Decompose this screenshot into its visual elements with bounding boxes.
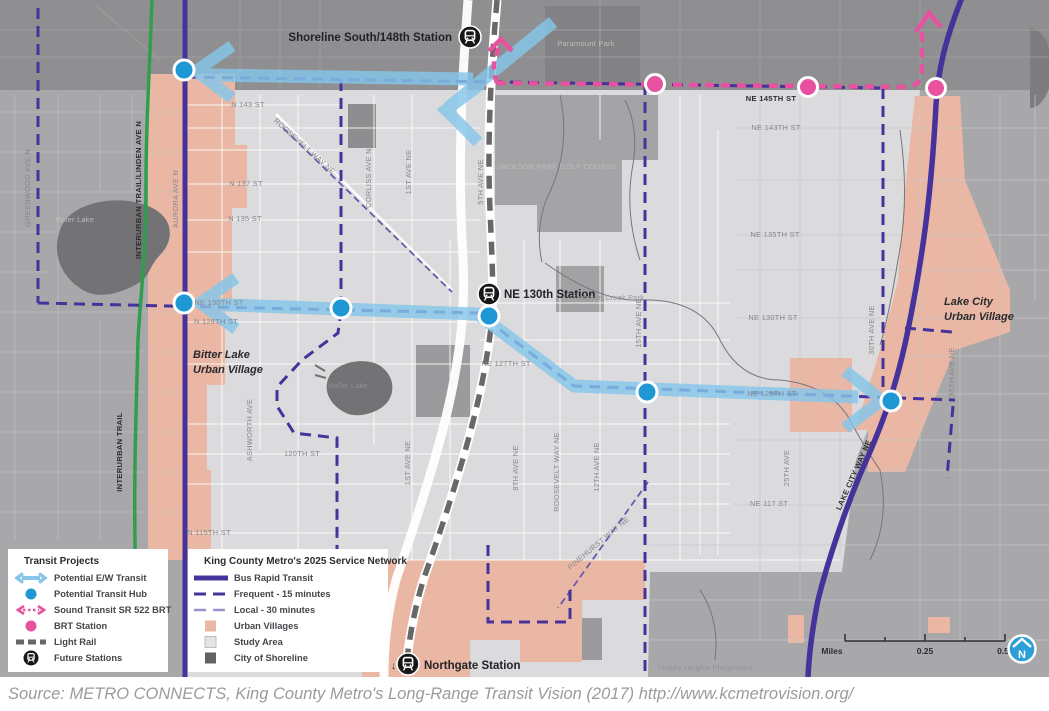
- legend-item-label: Bus Rapid Transit: [234, 573, 313, 583]
- local-line-icon: [188, 604, 234, 616]
- street-label: 1ST AVE NE: [404, 150, 413, 195]
- street-label: NE 130TH ST: [748, 313, 797, 322]
- street-label: AURORA AVE N: [171, 170, 180, 228]
- park-label: Paramount Park: [557, 39, 615, 48]
- legend-row: Urban Villages: [188, 618, 388, 634]
- lake-city-village-label-2: Urban Village: [944, 311, 1014, 323]
- street-label: 5TH AVE NE: [476, 159, 485, 204]
- street-label: N 115TH ST: [187, 528, 231, 537]
- street-label: 25TH AVE: [782, 450, 791, 486]
- street-label: N 128TH ST: [194, 317, 238, 326]
- legend-item-label: Light Rail: [54, 637, 96, 647]
- legend-row: Future Stations: [8, 650, 168, 666]
- street-label: 8TH AVE NE: [511, 445, 520, 490]
- legend-item-label: City of Shoreline: [234, 653, 308, 663]
- shoreline-station-label: Shoreline South/148th Station: [288, 32, 452, 44]
- future-station-icon-ne130th: [478, 283, 500, 305]
- legend-row: Potential Transit Hub: [8, 586, 168, 602]
- street-label: NE 117 ST: [750, 499, 788, 508]
- street-label: GREENWOOD AVE N: [23, 149, 32, 227]
- street-label: ROOSEVELT WAY NE: [552, 432, 561, 512]
- legend-row: Frequent - 15 minutes: [188, 586, 388, 602]
- urban-villages-swatch: [188, 620, 234, 632]
- light-rail-dash-icon: [8, 636, 54, 648]
- legend-row: Potential E/W Transit: [8, 570, 168, 586]
- legend-transit-projects: Transit Projects Potential E/W Transit P…: [8, 549, 168, 672]
- street-label: N 137 ST: [229, 179, 263, 188]
- northgate-continues-arrow: ↓: [391, 661, 396, 672]
- street-label: NE 135TH ST: [750, 230, 799, 239]
- source-credit-bar: Source: METRO CONNECTS, King County Metr…: [0, 677, 1049, 711]
- frequent-line-icon: [188, 588, 234, 600]
- legend-item-label: Potential Transit Hub: [54, 589, 147, 599]
- legend-service-network: King County Metro's 2025 Service Network…: [188, 549, 388, 672]
- legend-row: Bus Rapid Transit: [188, 570, 388, 586]
- street-label: NE 143TH ST: [751, 123, 800, 132]
- transit-hub-dot-icon: [8, 588, 54, 600]
- bitter-lake-village-label-1: Bitter Lake: [193, 349, 250, 361]
- north-compass-icon: N: [1009, 636, 1036, 663]
- source-text: Source: METRO CONNECTS, King County Metr…: [0, 685, 853, 704]
- street-label: ASHWORTH AVE: [245, 399, 254, 461]
- sr522-brt-arrow-icon: [8, 604, 54, 616]
- legend-item-label: Sound Transit SR 522 BRT: [54, 605, 171, 615]
- legend-projects-title: Transit Projects: [8, 549, 168, 570]
- study-area-swatch: [188, 636, 234, 648]
- legend-network-title: King County Metro's 2025 Service Network: [188, 549, 388, 570]
- brt-line-icon: [188, 572, 234, 584]
- lake-city-village-label-1: Lake City: [944, 296, 994, 308]
- legend-item-label: Frequent - 15 minutes: [234, 589, 331, 599]
- legend-row: BRT Station: [8, 618, 168, 634]
- street-label: N 143 ST: [231, 100, 265, 109]
- street-label: INTERURBAN TRAIL/LINDEN AVE N: [134, 121, 143, 259]
- city-of-shoreline-swatch: [188, 652, 234, 664]
- future-station-icon: [8, 650, 54, 666]
- legend-item-label: Future Stations: [54, 653, 122, 663]
- lake-label: Haller Lake: [328, 381, 368, 390]
- park-label: Victory Heights Playground: [658, 663, 752, 672]
- compass-letter: N: [1018, 649, 1026, 661]
- legend-row: Local - 30 minutes: [188, 602, 388, 618]
- street-label: 30TH AVE NE: [867, 305, 876, 355]
- future-station-icon-shoreline: [459, 26, 481, 48]
- metro-connects-map-page: Shoreline South/148th Station NE 130th S…: [0, 0, 1049, 711]
- street-label: NE 130TH ST: [194, 298, 243, 307]
- street-label: CORLISS AVE N: [364, 148, 373, 208]
- legend-item-label: BRT Station: [54, 621, 107, 631]
- legend-row: Study Area: [188, 634, 388, 650]
- legend-row: Light Rail: [8, 634, 168, 650]
- street-label: 15TH AVE NE: [634, 298, 643, 348]
- legend-row: Sound Transit SR 522 BRT: [8, 602, 168, 618]
- scale-unit-label: Miles: [821, 646, 843, 656]
- future-station-icon-northgate: [397, 653, 419, 675]
- street-label: 35TH AVE NE: [947, 347, 956, 397]
- street-label: NE 125TH ST: [747, 389, 796, 398]
- legend-item-label: Local - 30 minutes: [234, 605, 315, 615]
- street-label: 120TH ST: [284, 449, 320, 458]
- street-label: 12TH AVE NE: [592, 442, 601, 492]
- street-label: 1ST AVE NE: [403, 441, 412, 486]
- legend-row: City of Shoreline: [188, 650, 388, 666]
- park-label: JACKSON PARK GOLF COURSE: [497, 162, 617, 171]
- legend-item-label: Study Area: [234, 637, 283, 647]
- lake-label: Bitter Lake: [56, 215, 95, 224]
- brt-station-dot-icon: [8, 620, 54, 632]
- ew-transit-arrow-icon: [8, 572, 54, 584]
- street-label: NE 145TH ST: [746, 94, 797, 103]
- street-label: N 135 ST: [228, 214, 262, 223]
- legend-item-label: Urban Villages: [234, 621, 298, 631]
- bitter-lake-village-label-2: Urban Village: [193, 364, 263, 376]
- street-label: NE 127TH ST: [481, 359, 530, 368]
- scale-mid-label: 0.25: [917, 646, 934, 656]
- park-label: Thornton Creek Park: [572, 293, 645, 302]
- northgate-station-label: Northgate Station: [424, 660, 520, 672]
- legend-item-label: Potential E/W Transit: [54, 573, 146, 583]
- street-label: INTERURBAN TRAIL: [115, 412, 124, 492]
